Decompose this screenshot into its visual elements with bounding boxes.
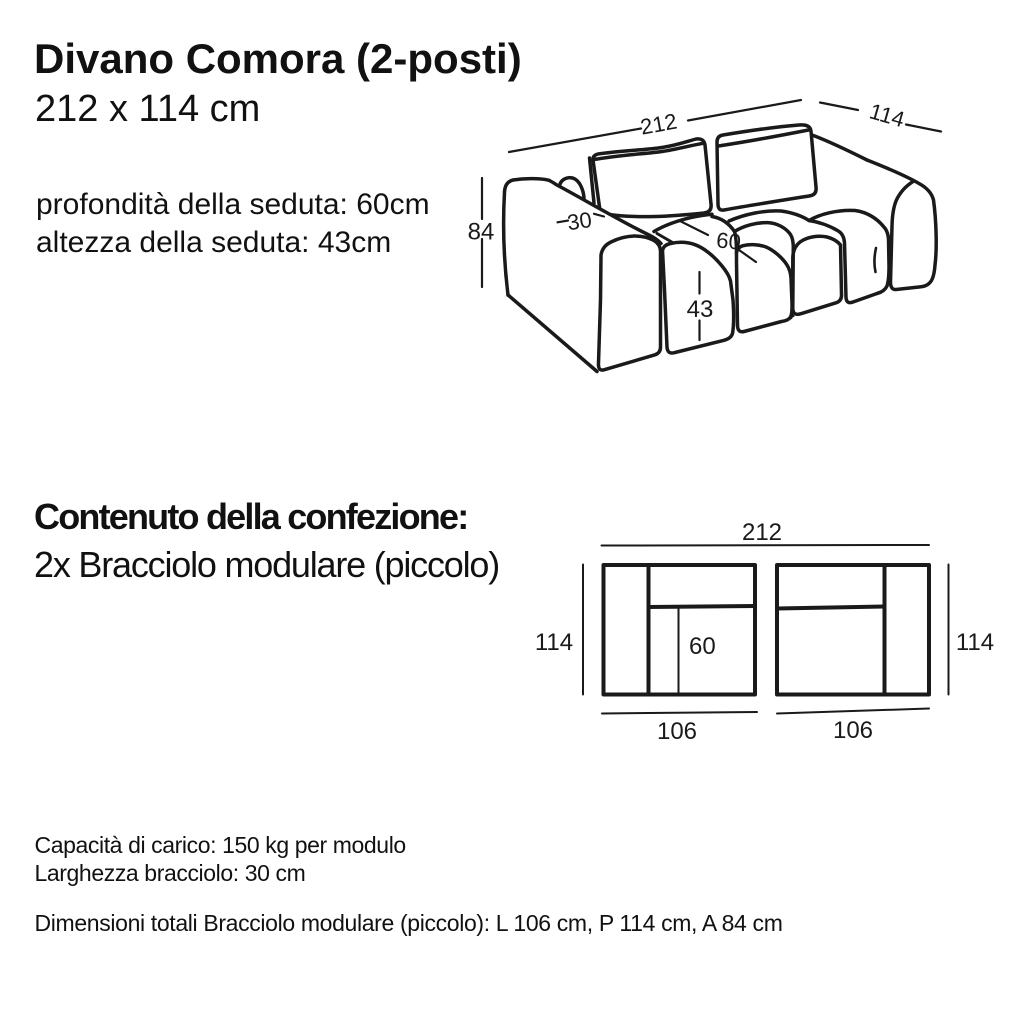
svg-text:114: 114 <box>535 629 573 656</box>
svg-text:84: 84 <box>468 219 495 246</box>
svg-text:114: 114 <box>867 98 908 132</box>
svg-text:114: 114 <box>956 629 994 656</box>
svg-text:43: 43 <box>687 296 714 323</box>
svg-text:212: 212 <box>638 109 679 140</box>
svg-text:60: 60 <box>689 633 716 660</box>
svg-text:106: 106 <box>833 717 873 744</box>
svg-text:60: 60 <box>715 228 742 255</box>
svg-text:212: 212 <box>742 519 782 546</box>
svg-text:30: 30 <box>566 207 594 235</box>
svg-text:106: 106 <box>657 718 697 745</box>
